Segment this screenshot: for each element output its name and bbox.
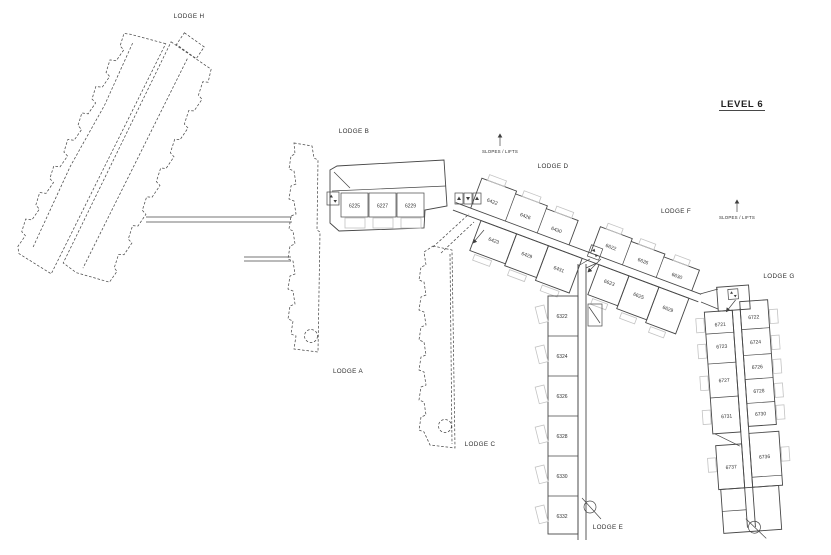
room-label: 6225 — [349, 204, 360, 210]
room-label: 6332 — [556, 514, 567, 520]
lodge-b-label: LODGE B — [339, 128, 369, 135]
room-label: 6721 — [715, 322, 727, 329]
floor-plan-page: LEVEL 6 LODGE H LODGE A LODGE C — [0, 0, 831, 555]
room-label: 6730 — [755, 411, 767, 418]
lodge-d-label: LODGE D — [538, 163, 569, 170]
lodge-c-outline — [419, 246, 455, 448]
room-wall — [752, 475, 782, 477]
room-label: 6629 — [661, 305, 674, 315]
balcony — [774, 383, 783, 398]
balcony — [606, 223, 623, 234]
room-label: 6625 — [632, 292, 645, 302]
slopes-lifts-label: SLOPES / LIFTS — [482, 149, 518, 154]
balcony — [488, 175, 507, 187]
room-wall — [742, 328, 770, 330]
room-label: 6723 — [716, 344, 728, 351]
room-label: 6229 — [405, 204, 416, 210]
link-f-to-g — [701, 302, 718, 309]
link-c-to-d — [441, 222, 474, 253]
lodge-c-label: LODGE C — [465, 441, 496, 448]
lodge-a-stair-circle — [305, 330, 318, 343]
stair-diagonal — [589, 307, 600, 323]
lodge-a-building — [288, 143, 320, 352]
lodge-c-stair-circle — [439, 420, 452, 433]
balcony — [620, 313, 637, 324]
room-wall — [708, 362, 736, 364]
lodge-h-inner-wall — [31, 42, 135, 249]
room-label: 6330 — [556, 474, 567, 480]
room-label: 6326 — [556, 394, 567, 400]
lodge-h-corridor-wall — [83, 58, 187, 269]
balcony — [776, 405, 785, 420]
room-label: 6623 — [603, 279, 616, 289]
lift-box — [327, 192, 339, 205]
room-label: 6328 — [556, 434, 567, 440]
balcony — [373, 218, 393, 228]
balcony — [781, 447, 790, 462]
balcony — [535, 305, 548, 324]
lift-up-glyph — [475, 197, 479, 201]
lift-up-glyph — [457, 197, 461, 201]
balcony — [555, 206, 574, 218]
link-e-to-f — [578, 259, 590, 266]
room-wall — [745, 378, 773, 380]
lodge-g-building: 6721 6723 6727 6731 6722 6724 6726 6728 … — [694, 283, 796, 542]
lodge-h-label: LODGE H — [174, 13, 205, 20]
room-label: 6622 — [604, 243, 617, 253]
balcony — [535, 425, 548, 444]
lodge-h-outline — [9, 22, 166, 274]
stair-exit-icon — [582, 498, 601, 519]
lodge-a-outline — [288, 143, 320, 352]
slopes-lifts-annotation-2: SLOPES / LIFTS — [719, 200, 755, 220]
lodge-c-corridor-wall — [450, 254, 452, 444]
balcony — [522, 191, 541, 203]
room-label: 6227 — [377, 204, 388, 210]
room-label: 6426 — [519, 212, 532, 222]
floor-plan-drawing: LEVEL 6 LODGE H LODGE A LODGE C — [0, 0, 831, 555]
link-e-to-f — [586, 263, 597, 268]
room-wall — [505, 194, 515, 221]
room-label: 6630 — [670, 272, 683, 282]
room-wall — [722, 510, 746, 512]
room-label: 6422 — [486, 197, 499, 207]
lodge-e-room-column — [548, 296, 578, 534]
lodge-e-label: LODGE E — [593, 524, 623, 531]
room-wall — [622, 241, 631, 264]
lodge-d-north-rooms — [471, 178, 581, 245]
balcony — [535, 345, 548, 364]
room-label: 6731 — [721, 413, 733, 420]
slopes-lifts-annotation-1: SLOPES / LIFTS — [482, 134, 518, 154]
room-label: 6722 — [748, 314, 760, 321]
level-title: LEVEL 6 — [721, 99, 764, 110]
balcony — [401, 218, 421, 228]
lodge-b-building: 6225 6227 6229 — [327, 160, 447, 231]
lift-down-glyph — [466, 197, 470, 201]
balcony — [773, 359, 782, 374]
balcony — [700, 376, 709, 391]
balcony — [473, 254, 492, 266]
lift-up-glyph — [730, 291, 733, 294]
room-wall — [710, 396, 738, 398]
lodge-h-wing-outline — [62, 42, 219, 289]
lift-icon — [728, 289, 739, 300]
room-wall — [743, 354, 771, 356]
link-bridge-h — [146, 217, 292, 261]
balcony — [702, 410, 711, 425]
room-wall — [656, 257, 664, 278]
lift-icon — [327, 192, 339, 205]
lodge-d-f-buildings: 6422 6426 6430 6423 6429 6431 6622 6626 … — [437, 167, 715, 345]
balcony — [535, 385, 548, 404]
link-f-to-g — [700, 289, 718, 294]
room-label: 6737 — [725, 464, 737, 471]
room-label: 6724 — [750, 339, 762, 346]
lift-bank-icon — [455, 193, 481, 204]
room-label: 6736 — [759, 454, 771, 461]
lodge-b-door-swing — [334, 172, 350, 188]
balcony — [639, 239, 656, 250]
lodge-b-outline — [330, 160, 447, 231]
lift-down-glyph — [334, 200, 338, 203]
room-label: 6324 — [556, 354, 567, 360]
room-label: 6726 — [752, 364, 764, 371]
balcony — [648, 327, 665, 338]
lodge-a-label: LODGE A — [333, 368, 364, 375]
lift-box — [728, 289, 739, 300]
slopes-lifts-label: SLOPES / LIFTS — [719, 215, 755, 220]
room-label: 6728 — [753, 388, 765, 395]
room-label: 6727 — [718, 378, 730, 385]
room-wall — [747, 401, 775, 403]
room-label: 6423 — [487, 236, 500, 246]
balcony — [769, 309, 778, 324]
room-label: 6322 — [556, 314, 567, 320]
lodge-c-building — [419, 214, 474, 448]
lodge-h-building — [9, 6, 225, 300]
lodge-g-label: LODGE G — [763, 273, 794, 280]
balcony — [696, 318, 705, 333]
balcony — [698, 344, 707, 359]
stair-exit-icon — [746, 517, 766, 539]
balcony — [708, 458, 717, 473]
balcony — [535, 465, 548, 484]
balcony — [508, 270, 527, 282]
balcony — [535, 505, 548, 524]
room-label: 6429 — [520, 251, 533, 261]
balcony — [345, 218, 365, 228]
lift-down-glyph — [734, 295, 737, 298]
balcony — [771, 335, 780, 350]
room-label: 6431 — [552, 265, 565, 275]
link-c-to-d — [433, 214, 469, 247]
room-wall — [537, 209, 546, 233]
room-label: 6626 — [637, 257, 650, 267]
room-wall — [706, 332, 734, 334]
balcony — [673, 255, 690, 266]
room-label: 6430 — [550, 226, 563, 236]
lodge-f-label: LODGE F — [661, 208, 691, 215]
lodge-g-bottom-section — [721, 485, 782, 533]
balcony — [540, 285, 559, 297]
